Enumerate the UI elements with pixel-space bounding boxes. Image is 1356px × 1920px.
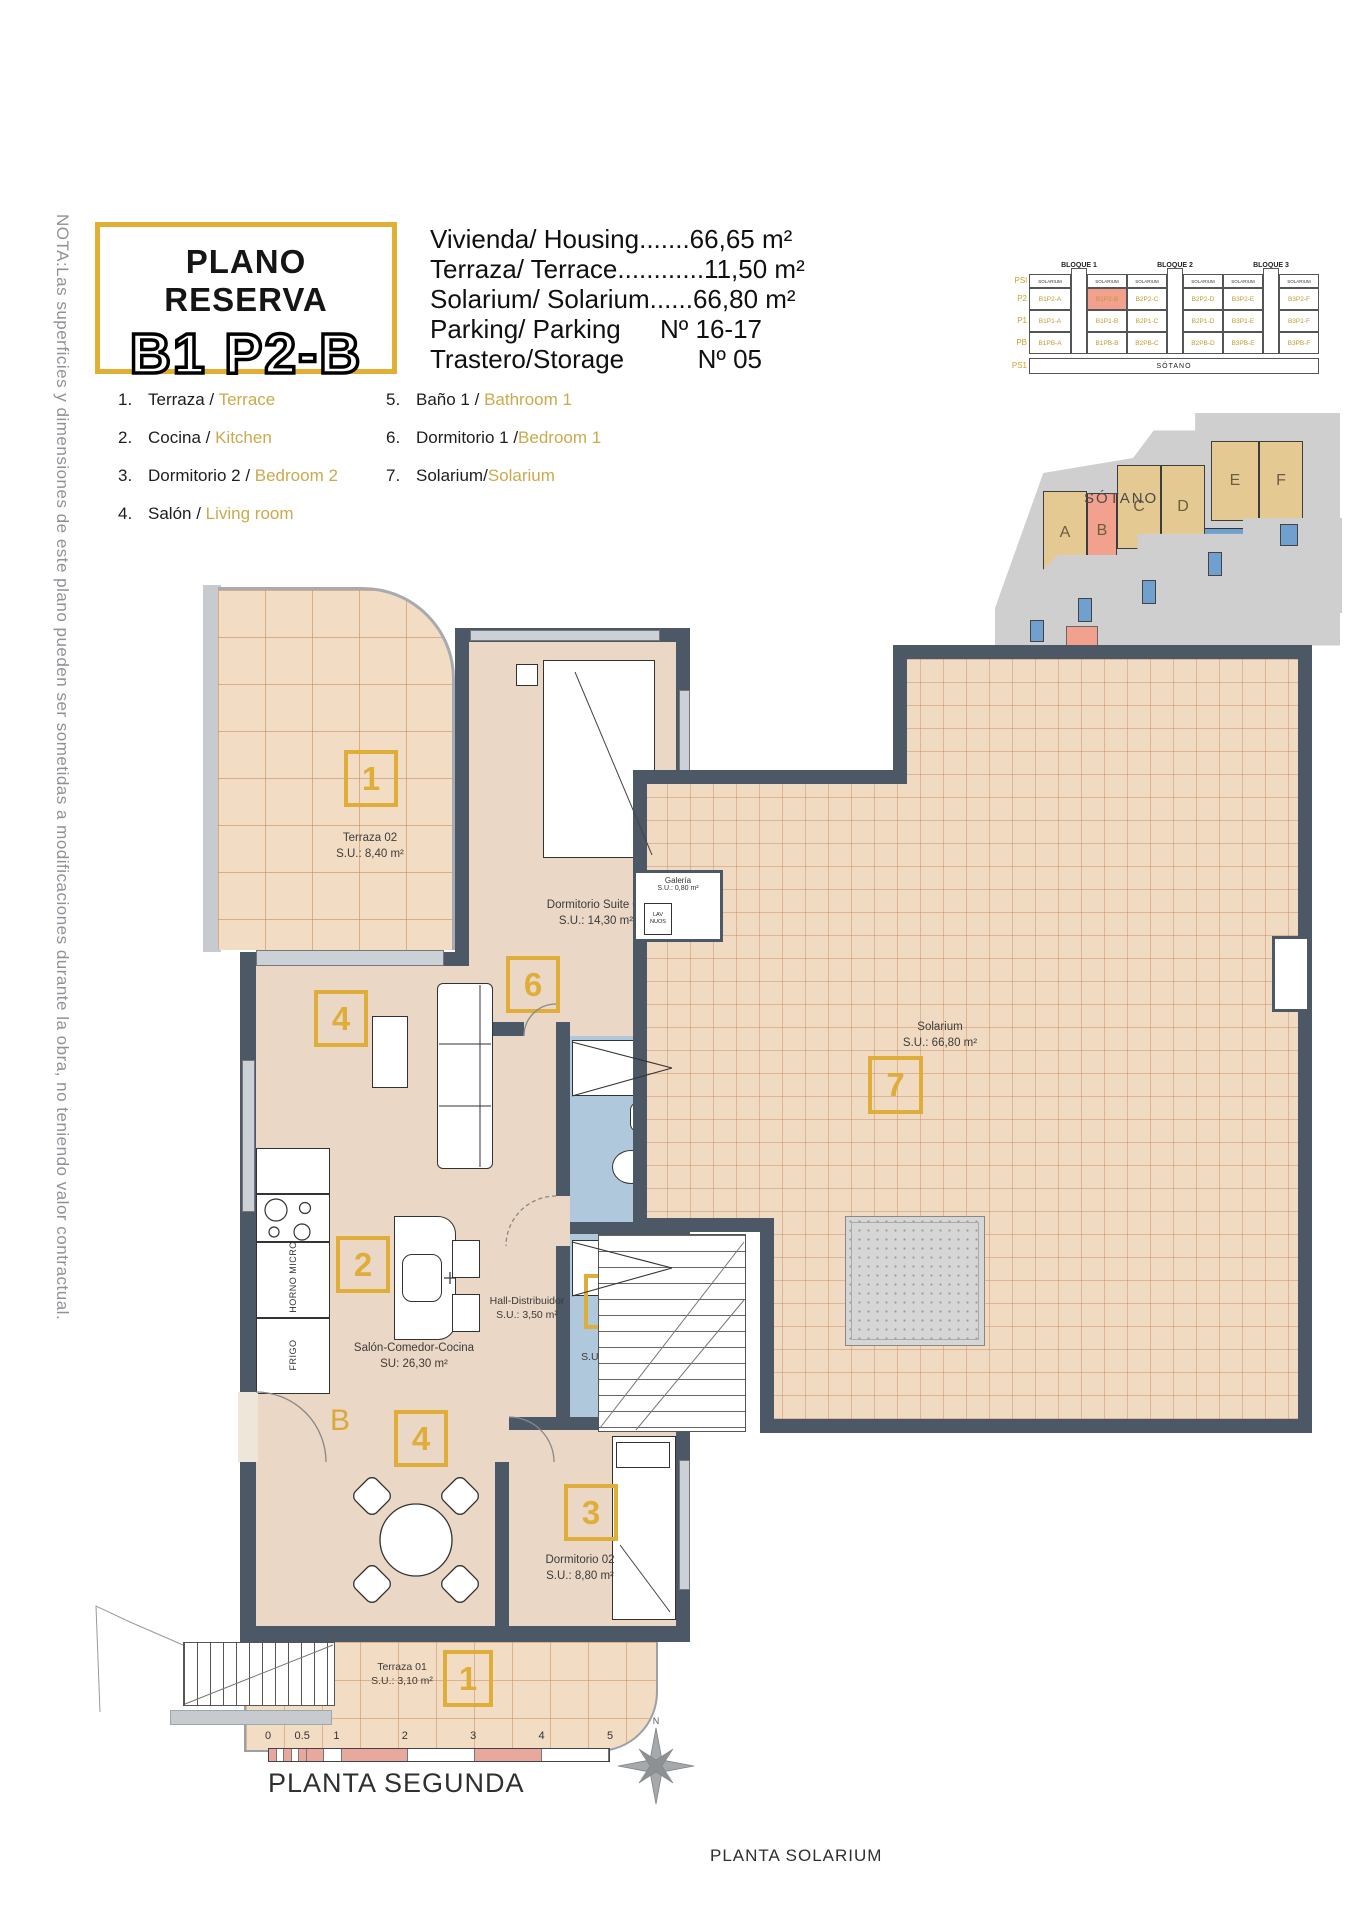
fridge-label: FRIGO (288, 1315, 298, 1395)
scale-tick-1: 1 (333, 1730, 339, 1742)
terrace2-sliding-door (256, 950, 444, 966)
matrix-cell-B1P1-B: B1P1-B (1087, 310, 1127, 332)
row-label-p2: P2 (1005, 294, 1027, 303)
scale-segment-2 (284, 1749, 292, 1761)
scale-tick-5: 5 (607, 1730, 613, 1742)
scale-segment-1 (277, 1749, 285, 1761)
galeria-appliance: LAVNUOS (644, 903, 672, 935)
stove (256, 1194, 330, 1242)
wall-salon-dorm2 (495, 1462, 509, 1626)
matrix-cell-solarium-D: SOLARIUM (1183, 274, 1223, 288)
marker-bedroom2: 3 (564, 1484, 618, 1541)
matrix-cell-B3P1-E: B3P1-E (1223, 310, 1263, 332)
galeria-name: Galería (636, 876, 720, 885)
row-label-psl: PSl (1005, 276, 1027, 285)
matrix-cell-B3P2-E: B3P2-E (1223, 288, 1263, 310)
salon-label: Salón-Comedor-CocinaSU: 26,30 m² (354, 1340, 474, 1372)
legend-item-1: 1.Terraza / Terrace (118, 390, 275, 410)
dorm2-window (679, 1460, 690, 1590)
suite-top-window (470, 630, 660, 641)
scale-tick-0.5: 0.5 (295, 1730, 310, 1742)
stool-1 (452, 1240, 480, 1278)
legend-item-2: 2.Cocina / Kitchen (118, 428, 272, 448)
row-label-ps1: PS1 (1005, 361, 1027, 370)
legend-item-7: 7.Solarium/Solarium (386, 466, 555, 486)
scale-tick-3: 3 (470, 1730, 476, 1742)
basement-stair-4 (1208, 552, 1222, 576)
storage-label: Trastero/Storage (430, 344, 624, 374)
matrix-cell-B1P2-A: B1P2-A (1029, 288, 1071, 310)
marker-kitchen: 2 (336, 1236, 390, 1293)
solarium-stairs (598, 1234, 746, 1432)
entrance-opening (238, 1392, 258, 1462)
svg-text:N: N (653, 1716, 660, 1726)
marker-bedroom1: 6 (506, 956, 560, 1013)
matrix-cell-B1P1-A: B1P1-A (1029, 310, 1071, 332)
basement-diagram: SÓTANO (1000, 488, 1345, 653)
stair-tower-1 (1071, 268, 1087, 354)
scale-segment-10 (542, 1749, 609, 1761)
area-summary: Vivienda/ Housing.......66,65 m² Terraza… (430, 224, 762, 374)
basement-stair-1 (1030, 620, 1044, 642)
parking-label: Parking/ Parking (430, 314, 621, 344)
scale-segment-9 (475, 1749, 542, 1761)
terrace2-floor (218, 587, 455, 950)
row-label-pb: PB (1005, 338, 1027, 347)
scale-segment-7 (342, 1749, 409, 1761)
basement-stair-5 (1280, 524, 1298, 546)
galeria-room: Galería S.U.: 0,80 m² LAVNUOS (633, 870, 723, 942)
stool-2 (452, 1294, 480, 1332)
galeria-area: S.U.: 0,80 m² (636, 885, 720, 892)
scale-segment-0 (269, 1749, 277, 1761)
marker-living: 4 (314, 990, 368, 1047)
matrix-cell-B2P2-C: B2P2-C (1127, 288, 1167, 310)
matrix-cell-B2PB-D: B2PB-D (1183, 332, 1223, 354)
summary-storage: Trastero/Storage Nº 05 (430, 344, 762, 374)
basement-label: SÓTANO (1084, 490, 1158, 507)
wall-hall-bath2 (556, 1246, 570, 1420)
disclaimer-note: NOTA:Las superficies y dimensiones de es… (52, 214, 72, 1334)
marker-terrace1: 1 (443, 1650, 493, 1707)
entrance-door-label: B (330, 1404, 350, 1438)
matrix-cell-solarium-E: SOLARIUM (1223, 274, 1263, 288)
suite-label: Dormitorio Suite 01S.U.: 14,30 m² (547, 897, 645, 929)
stair-tower-3 (1263, 268, 1279, 354)
island-sink (402, 1254, 442, 1302)
matrix-cell-B3PB-E: B3PB-E (1223, 332, 1263, 354)
marker-terrace2: 1 (344, 750, 398, 807)
hall-label: Hall-DistribuidorS.U.: 3,50 m² (490, 1294, 565, 1322)
dorm2-pillow (616, 1442, 670, 1468)
matrix-cell-solarium-F: SOLARIUM (1279, 274, 1319, 288)
matrix-cell-B2P1-D: B2P1-D (1183, 310, 1223, 332)
summary-terrace: Terraza/ Terrace............11,50 m² (430, 254, 762, 284)
marker-dining: 4 (394, 1410, 448, 1467)
unit-code: B1 P2-B (100, 321, 392, 387)
scale-segment-8 (408, 1749, 475, 1761)
title-box: PLANO RESERVA B1 P2-B (95, 222, 397, 374)
kitchen-counter (256, 1148, 330, 1194)
matrix-cell-solarium-B: SOLARIUM (1087, 274, 1127, 288)
legend-item-4: 4.Salón / Living room (118, 504, 294, 524)
storage-value: Nº 05 (698, 344, 762, 374)
scale-segment-4 (299, 1749, 307, 1761)
matrix-cell-B3P1-F: B3P1-F (1279, 310, 1319, 332)
matrix-cell-B3P2-F: B3P2-F (1279, 288, 1319, 310)
plan-title: PLANO RESERVA (100, 243, 392, 319)
floor-plan-sheet: NOTA:Las superficies y dimensiones de es… (0, 0, 1356, 1920)
block-floor-matrix: BLOQUE 1BLOQUE 2BLOQUE 3PSlP2P1PBPS1SOLA… (1005, 262, 1321, 382)
matrix-cell-solarium-C: SOLARIUM (1127, 274, 1167, 288)
legend-item-3: 3.Dormitorio 2 / Bedroom 2 (118, 466, 338, 486)
scale-segment-5 (307, 1749, 324, 1761)
matrix-cell-B2P1-C: B2P1-C (1127, 310, 1167, 332)
sofa (437, 983, 493, 1169)
basement-stair-3 (1142, 580, 1156, 604)
scale-segment-3 (292, 1749, 300, 1761)
suite-nightstand (516, 664, 538, 686)
wall-hall-bath1 (556, 1022, 570, 1196)
scale-bar (268, 1748, 610, 1762)
matrix-cell-B3PB-F: B3PB-F (1279, 332, 1319, 354)
legend-item-5: 5.Baño 1 / Bathroom 1 (386, 390, 572, 410)
caption-planta-segunda: PLANTA SEGUNDA (268, 1768, 525, 1799)
terrace1-label: Terraza 01S.U.: 3,10 m² (371, 1660, 433, 1688)
stair-landing (170, 1710, 332, 1725)
legend-item-6: 6.Dormitorio 1 /Bedroom 1 (386, 428, 601, 448)
stair-tower-2 (1167, 268, 1183, 354)
row-label-p1: P1 (1005, 316, 1027, 325)
oven-label: HORNO MICRO (288, 1237, 298, 1317)
scale-tick-0: 0 (265, 1730, 271, 1742)
caption-planta-solarium: PLANTA SOLARIUM (710, 1846, 882, 1866)
solarium-niche (1272, 936, 1310, 1012)
summary-housing: Vivienda/ Housing.......66,65 m² (430, 224, 762, 254)
matrix-cell-B1PB-A: B1PB-A (1029, 332, 1071, 354)
scale-tick-4: 4 (539, 1730, 545, 1742)
matrix-cell-B1PB-B: B1PB-B (1087, 332, 1127, 354)
matrix-sotano-bar: SÓTANO (1029, 358, 1319, 374)
scale-segment-6 (324, 1749, 341, 1761)
solarium-label: SolariumS.U.: 66,80 m² (903, 1019, 977, 1051)
matrix-cell-B2PB-C: B2PB-C (1127, 332, 1167, 354)
plan-stairs (183, 1642, 335, 1706)
living-window (242, 1060, 255, 1212)
summary-solarium: Solarium/ Solarium......66,80 m² (430, 284, 762, 314)
summary-parking: Parking/ Parking Nº 16-17 (430, 314, 762, 344)
basement-stair-2 (1078, 598, 1092, 622)
terrace2-label: Terraza 02S.U.: 8,40 m² (336, 830, 404, 862)
tv-bench (372, 1016, 408, 1088)
dorm2-label: Dormitorio 02S.U.: 8,80 m² (545, 1552, 614, 1584)
parking-value: Nº 16-17 (660, 314, 762, 344)
marker-solarium: 7 (868, 1056, 923, 1114)
matrix-cell-solarium-A: SOLARIUM (1029, 274, 1071, 288)
solarium-pad (845, 1216, 985, 1346)
scale-tick-2: 2 (402, 1730, 408, 1742)
matrix-cell-B2P2-D: B2P2-D (1183, 288, 1223, 310)
matrix-cell-B1P2-B: B1P2-B (1087, 288, 1127, 310)
